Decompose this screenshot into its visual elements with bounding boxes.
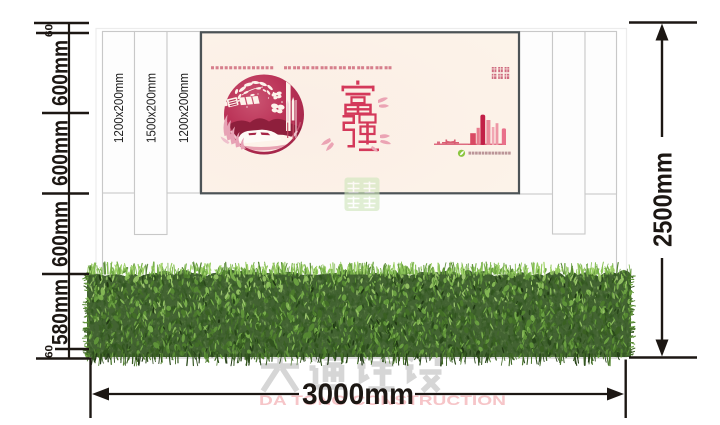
svg-text:3000mm: 3000mm xyxy=(302,378,414,411)
svg-text:600mm: 600mm xyxy=(48,40,73,106)
svg-text:1200x200mm: 1200x200mm xyxy=(112,73,126,143)
svg-text:1200x200mm: 1200x200mm xyxy=(177,73,191,143)
svg-text:1500x200mm: 1500x200mm xyxy=(145,73,159,143)
svg-text:60: 60 xyxy=(44,345,56,358)
svg-text:600mm: 600mm xyxy=(48,120,73,186)
svg-text:580mm: 580mm xyxy=(48,279,73,345)
svg-text:60: 60 xyxy=(44,24,56,37)
svg-text:600mm: 600mm xyxy=(48,201,73,267)
svg-text:2500mm: 2500mm xyxy=(648,152,678,247)
